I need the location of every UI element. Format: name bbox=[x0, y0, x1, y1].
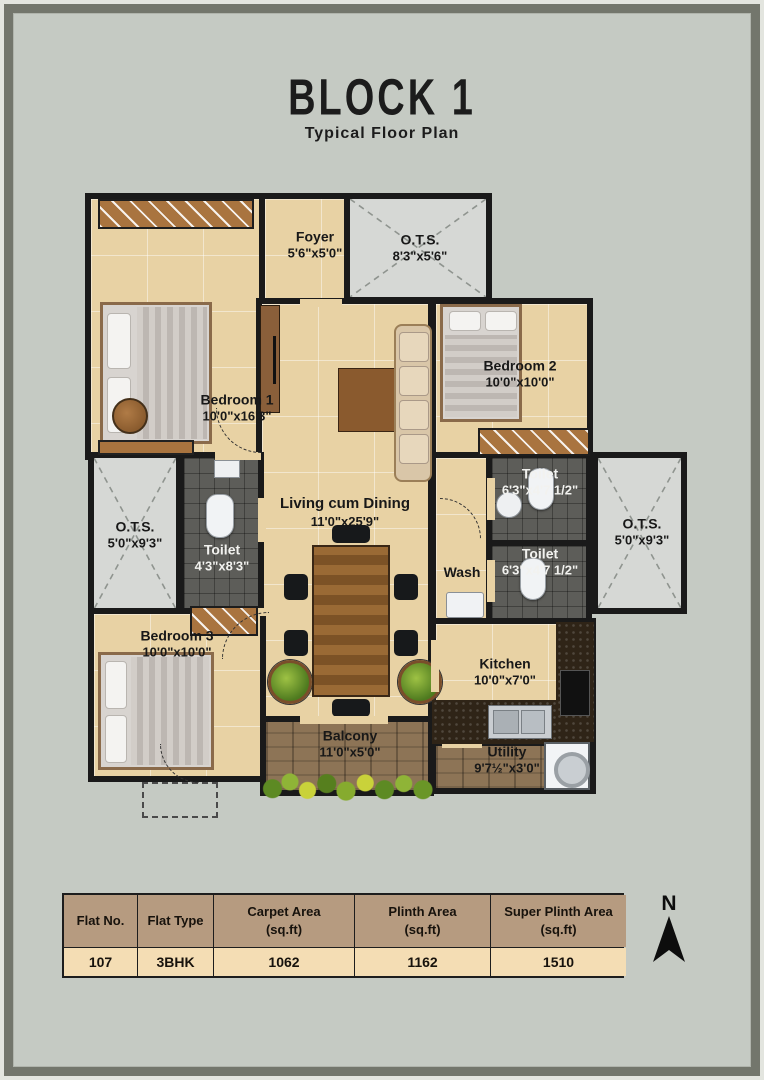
compass: N bbox=[650, 893, 688, 962]
table-value-super-plinth-area: 1510 bbox=[491, 948, 626, 976]
table-value-carpet-area: 1062 bbox=[214, 948, 354, 976]
washing-machine bbox=[544, 742, 590, 790]
table-value-flat-no: 107 bbox=[64, 948, 137, 976]
dining-chair bbox=[284, 574, 308, 600]
tv-cabinet bbox=[338, 368, 396, 432]
sofa bbox=[394, 324, 432, 482]
door-gap bbox=[431, 640, 439, 692]
wash-sink bbox=[446, 592, 484, 618]
door-gap bbox=[258, 498, 266, 542]
table-header-flat-no: Flat No. bbox=[64, 895, 137, 947]
dining-chair bbox=[284, 630, 308, 656]
door-gap bbox=[300, 716, 388, 724]
potted-plant bbox=[268, 660, 312, 704]
label-kitchen: Kitchen 10'0"x7'0" bbox=[474, 654, 536, 689]
door-gap bbox=[487, 478, 495, 520]
label-toilet-right-top: Toilet 6'3"x4'7 1/2" bbox=[502, 464, 578, 499]
dining-chair bbox=[394, 574, 418, 600]
label-balcony: Balcony 11'0"x5'0" bbox=[319, 726, 380, 761]
page-title: BLOCK 1 bbox=[0, 70, 764, 128]
dining-chair bbox=[332, 699, 370, 717]
label-ots-left: O.T.S. 5'0"x9'3" bbox=[108, 517, 163, 552]
ledge-dashed-outline bbox=[142, 782, 218, 818]
table-header-super-plinth-area: Super Plinth Area (sq.ft) bbox=[491, 895, 626, 947]
label-foyer: Foyer 5'6"x5'0" bbox=[288, 227, 343, 262]
compass-n-label: N bbox=[650, 893, 688, 914]
floor-plan-scene: BLOCK 1 Typical Floor Plan bbox=[0, 0, 764, 1080]
toilet-fixture bbox=[206, 494, 234, 538]
door-gap bbox=[487, 560, 495, 602]
floor-plan-page: BLOCK 1 Typical Floor Plan bbox=[4, 4, 760, 1076]
balcony-plants bbox=[262, 770, 437, 804]
label-bedroom3: Bedroom 3 10'0"x10'0" bbox=[140, 626, 213, 661]
side-table-bedroom1 bbox=[112, 398, 148, 434]
washbasin bbox=[214, 460, 240, 478]
label-bedroom1: Bedroom 1 10'0"x16'3" bbox=[200, 390, 273, 425]
label-toilet-common: Toilet 4'3"x8'3" bbox=[195, 540, 250, 575]
table-header-plinth-area: Plinth Area (sq.ft) bbox=[355, 895, 490, 947]
flat-info-table: Flat No. Flat Type Carpet Area (sq.ft) P… bbox=[62, 893, 624, 978]
north-arrow-icon bbox=[653, 916, 685, 962]
wardrobe-bedroom1 bbox=[98, 199, 254, 229]
dining-chair bbox=[394, 630, 418, 656]
wardrobe-bedroom2 bbox=[478, 428, 590, 456]
table-value-plinth-area: 1162 bbox=[355, 948, 490, 976]
label-living-dining: Living cum Dining 11'0"x25'9" bbox=[280, 494, 410, 530]
table-header-flat-type: Flat Type bbox=[138, 895, 213, 947]
label-utility: Utility 9'7½"x3'0" bbox=[474, 742, 540, 777]
kitchen-counter bbox=[556, 622, 594, 742]
table-value-flat-type: 3BHK bbox=[138, 948, 213, 976]
label-bedroom2: Bedroom 2 10'0"x10'0" bbox=[483, 356, 556, 391]
table-header-carpet-area: Carpet Area (sq.ft) bbox=[214, 895, 354, 947]
door-gap bbox=[215, 452, 261, 460]
label-ots-right: O.T.S. 5'0"x9'3" bbox=[615, 514, 670, 549]
label-wash: Wash bbox=[444, 563, 481, 581]
door-gap bbox=[300, 299, 342, 307]
dresser-bedroom1 bbox=[98, 440, 194, 455]
title-block: BLOCK 1 Typical Floor Plan bbox=[0, 70, 764, 143]
label-ots-top: O.T.S. 8'3"x5'6" bbox=[393, 230, 448, 265]
kitchen-counter bbox=[432, 700, 558, 744]
label-toilet-right-bottom: Toilet 6'3"x4'7 1/2" bbox=[502, 544, 578, 579]
dining-table bbox=[312, 545, 390, 697]
